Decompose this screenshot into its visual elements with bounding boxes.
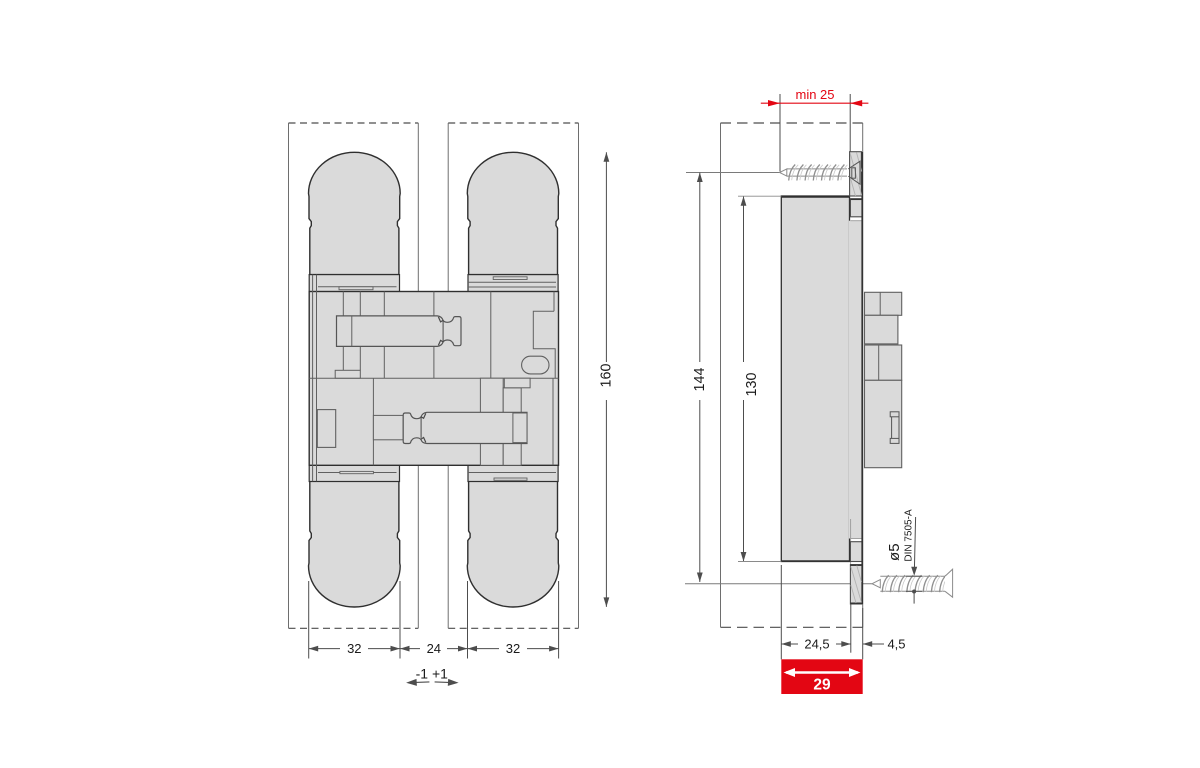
svg-text:32: 32 bbox=[347, 641, 361, 656]
svg-text:130: 130 bbox=[744, 373, 760, 397]
svg-text:32: 32 bbox=[506, 641, 520, 656]
svg-text:ø5: ø5 bbox=[886, 543, 903, 561]
svg-text:-1 +1: -1 +1 bbox=[416, 666, 449, 682]
svg-text:4,5: 4,5 bbox=[887, 637, 905, 652]
svg-text:160: 160 bbox=[598, 364, 614, 388]
svg-text:min 25: min 25 bbox=[795, 87, 834, 102]
svg-text:DIN 7505-A: DIN 7505-A bbox=[903, 509, 914, 562]
svg-text:24: 24 bbox=[427, 641, 441, 656]
svg-text:24,5: 24,5 bbox=[804, 637, 829, 652]
svg-text:144: 144 bbox=[692, 368, 708, 392]
svg-text:29: 29 bbox=[813, 677, 831, 694]
